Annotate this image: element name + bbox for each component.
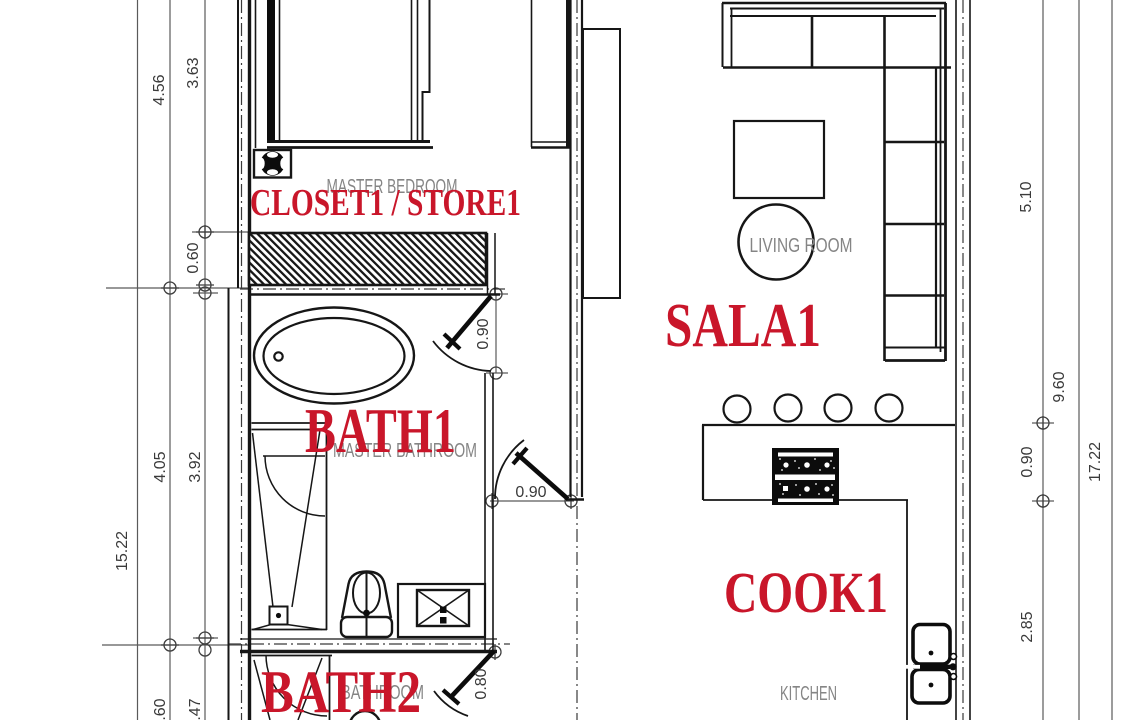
svg-text:5.10: 5.10 — [1018, 181, 1035, 212]
svg-text:CLOSET1 / STORE1: CLOSET1 / STORE1 — [250, 182, 521, 224]
svg-text:SALA1: SALA1 — [665, 292, 821, 360]
svg-text:0.90: 0.90 — [1019, 446, 1036, 477]
svg-text:3.63: 3.63 — [185, 57, 202, 88]
svg-text:0.80: 0.80 — [473, 668, 490, 699]
svg-text:LIVING ROOM: LIVING ROOM — [750, 235, 853, 257]
svg-text:0.90: 0.90 — [475, 318, 492, 349]
svg-text:BATH2: BATH2 — [261, 659, 421, 720]
svg-text:1.60: 1.60 — [152, 698, 169, 720]
svg-text:4.05: 4.05 — [152, 451, 169, 482]
svg-text:BATH1: BATH1 — [305, 396, 456, 466]
svg-text:KITCHEN: KITCHEN — [780, 683, 837, 705]
svg-text:4.56: 4.56 — [151, 74, 168, 105]
svg-text:15.22: 15.22 — [114, 531, 131, 571]
svg-text:0.60: 0.60 — [185, 242, 202, 273]
svg-text:17.22: 17.22 — [1087, 442, 1104, 482]
svg-text:3.92: 3.92 — [187, 451, 204, 482]
svg-text:COOK1: COOK1 — [724, 560, 888, 625]
svg-text:0.90: 0.90 — [515, 484, 546, 501]
svg-text:1.47: 1.47 — [187, 698, 204, 720]
svg-text:2.85: 2.85 — [1019, 611, 1036, 642]
svg-text:9.60: 9.60 — [1051, 371, 1068, 402]
